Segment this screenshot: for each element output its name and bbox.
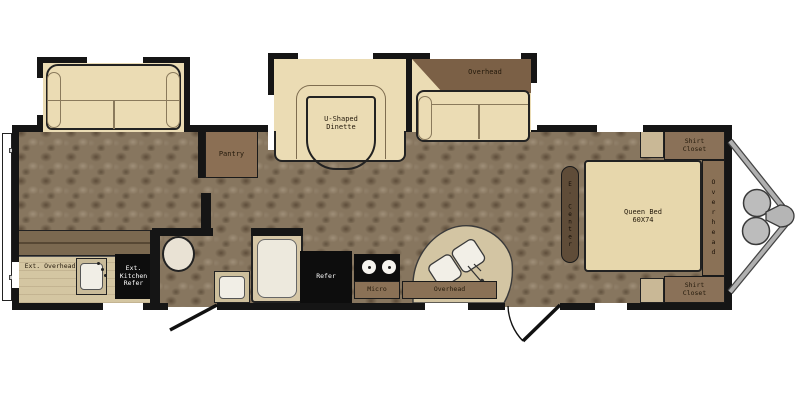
bedroom-cabinet-bottom	[640, 278, 664, 303]
bath-sink	[219, 276, 245, 299]
ext-overhead-cabinet-seam	[19, 242, 151, 244]
queen-bed-label: Queen Bed 60X74	[584, 160, 702, 272]
wall-bottom-3	[217, 303, 425, 310]
stove-burner-left-center	[368, 266, 371, 269]
main-entry-door	[523, 305, 560, 341]
shirt-closet-bottom-label: Shirt Closet	[664, 276, 725, 303]
wall-bottom-4	[468, 303, 505, 310]
ext-sink-faucet-dot3	[104, 274, 107, 277]
hitch-coupler	[766, 205, 794, 227]
window-bottom-bedroom	[595, 303, 627, 310]
main-entry-door-swing	[508, 306, 523, 341]
window-sofa-slideout-side	[531, 83, 537, 130]
window-dinette-top	[298, 53, 373, 59]
window-rear-slideout-top	[87, 57, 143, 63]
shirt-closet-top-label: Shirt Closet	[664, 131, 725, 160]
micro-label: Micro	[354, 281, 400, 299]
pantry-wall	[198, 131, 205, 178]
stove-burner-right-center	[388, 266, 391, 269]
wall-bottom-2	[143, 303, 168, 310]
ext-kitchen-sink	[80, 263, 103, 290]
entertainment-center-label: E. Center	[561, 166, 579, 263]
ext-kitchen-refer-label: Ext. Kitchen Refer	[115, 254, 152, 299]
wall-right	[725, 125, 732, 310]
front-sofa-overhead-label: Overhead	[440, 66, 530, 78]
ext-sink-faucet-dot1	[97, 262, 100, 265]
wall-top-2	[190, 125, 268, 132]
wall-top-4	[643, 125, 732, 132]
kitchen-overhead-label: Overhead	[402, 281, 497, 299]
bath-entry-door	[170, 305, 217, 330]
window-rear-side	[12, 262, 19, 288]
front-sofa-seat-seam	[432, 104, 528, 140]
bath-wall-vertical	[201, 193, 211, 236]
wall-top-3	[537, 125, 597, 132]
rear-sofa-cushion-divider	[113, 101, 115, 129]
window-sofa-slideout-top	[430, 53, 521, 59]
pantry-label: Pantry	[205, 131, 258, 178]
wall-bottom-5	[560, 303, 595, 310]
ext-sink-faucet-dot2	[101, 268, 104, 271]
bath-wall-shower	[251, 228, 303, 236]
bedroom-overhead-label: Overhead	[702, 160, 725, 276]
window-bottom-kitchen	[425, 303, 468, 310]
wall-bottom-6	[627, 303, 732, 310]
ext-overhead-label: Ext. Overhead	[18, 260, 82, 274]
toilet	[162, 236, 195, 272]
shower-pan	[257, 239, 297, 298]
bath-wall-ext-kitchen	[150, 230, 160, 303]
propane-tank-top	[744, 190, 771, 217]
rear-sofa-arm-left	[47, 72, 61, 128]
rear-sofa-arm-right	[166, 72, 180, 128]
window-bedroom-top	[597, 125, 643, 132]
window-dinette-side	[268, 95, 274, 150]
floorplan-canvas: U-Shaped Dinette Overhead Pantry Ext. Ov…	[0, 0, 800, 400]
propane-tank-bottom	[743, 218, 770, 245]
refer-label: Refer	[300, 251, 352, 303]
bedroom-cabinet-top	[640, 131, 664, 158]
dinette-label: U-Shaped Dinette	[306, 110, 376, 136]
wall-bottom-1	[12, 303, 103, 310]
window-bottom-ext-kitchen	[103, 303, 143, 310]
hitch-tongue	[730, 141, 789, 292]
window-rear-slideout-side	[37, 78, 43, 115]
front-sofa-cushion-divider	[478, 105, 480, 139]
front-sofa-arm-left	[418, 96, 432, 140]
